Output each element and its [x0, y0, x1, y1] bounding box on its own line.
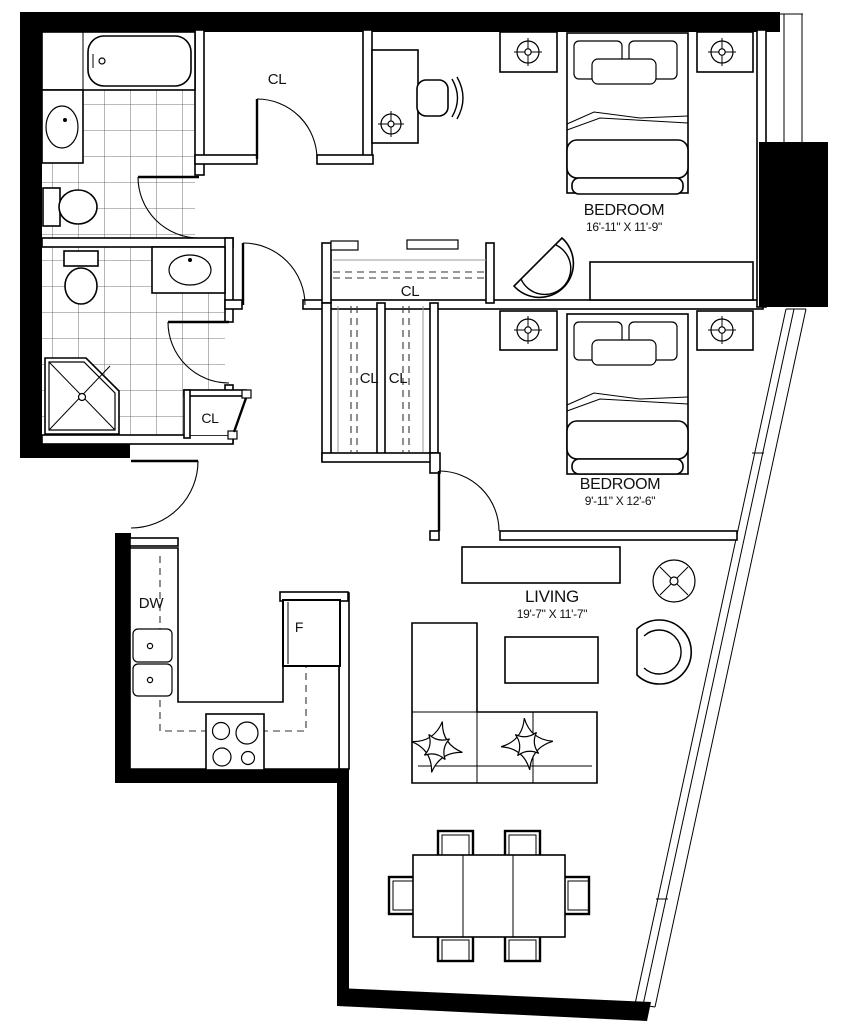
kitchen-top-wall-stub: [130, 538, 178, 546]
entry-closet-right-wall: [363, 30, 372, 159]
dining-area: [389, 831, 589, 961]
bedroom1-bottom-wall: [303, 300, 763, 309]
living-dimensions: 19'-7" X 11'-7": [517, 607, 587, 621]
bedroom-2: BEDROOM 9'-11" X 12'-6": [500, 311, 753, 508]
bedroom1-label: BEDROOM: [584, 202, 665, 219]
linen-closet-label: CL: [201, 410, 219, 426]
dining-chair: [389, 877, 414, 914]
entry-closet-label: CL: [268, 71, 287, 88]
bed-bench: [572, 459, 683, 474]
top-wall: [20, 12, 780, 32]
hall-closet-right-wall: [430, 303, 438, 461]
bedroom2-door-jamb-wall: [430, 453, 440, 473]
duvet-foot: [567, 140, 688, 178]
nightstand: [697, 32, 753, 72]
bed: [567, 314, 688, 474]
bedroom2-wall-corner: [430, 531, 439, 540]
throw-pillow: [592, 59, 656, 84]
refrigerator: F: [283, 600, 340, 666]
bed1-closet-right-wall: [486, 243, 494, 303]
armchair: [637, 620, 691, 684]
window-top-right: [780, 14, 803, 142]
entry-closet-door: [257, 99, 317, 159]
entry-closet: CL: [268, 71, 287, 88]
burner: [242, 752, 255, 765]
sliding-door-panel: [407, 240, 458, 249]
dining-chair: [564, 877, 589, 914]
refrigerator-label: F: [295, 619, 303, 635]
sink-faucet-icon: [63, 118, 67, 122]
hall-closet-left-wall: [322, 303, 331, 461]
hall-closet-bottom-wall: [322, 453, 438, 462]
tub-drain-icon: [99, 58, 105, 64]
toilet: [64, 251, 98, 304]
bed-bench: [572, 178, 683, 194]
living-room: LIVING 19'-7" X 11'-7": [406, 547, 695, 783]
bedroom1-dimensions: 16'-11" X 11'-9": [586, 220, 662, 234]
dining-chair: [505, 831, 540, 856]
bedroom1-closet-label: CL: [401, 283, 420, 300]
armchair: [514, 238, 573, 297]
floor-lamp-symbol: [653, 560, 695, 602]
floor-plan: CL CL CL CL CL: [0, 0, 848, 1024]
throw-pillow: [592, 340, 656, 365]
door-swing: [439, 471, 499, 531]
left-wall: [20, 12, 42, 458]
bottom-wall: [337, 988, 651, 1021]
hall-closet-right-label: CL: [389, 370, 408, 387]
bedroom2-dimensions: 9'-11" X 12'-6": [585, 494, 655, 508]
nightstand: [697, 311, 753, 350]
dresser: [590, 262, 753, 300]
entry-door: [131, 461, 198, 528]
living-label: LIVING: [525, 587, 579, 606]
bedroom1-closet: CL: [331, 240, 486, 300]
bed: [567, 33, 688, 194]
bedroom2-bottom-wall: [500, 531, 737, 540]
entry-closet-bottom-wall-left: [195, 155, 257, 164]
toilet: [43, 188, 97, 226]
bath-divider-wall: [42, 238, 233, 247]
burner: [213, 748, 231, 766]
bedroom1-door: [243, 243, 305, 305]
stove: [206, 714, 264, 770]
linen-closet: CL: [184, 390, 251, 439]
closet-rod-dashes: [333, 272, 486, 278]
door-swing: [243, 243, 305, 305]
kitchen: F DW: [130, 548, 348, 770]
dining-chair: [505, 936, 540, 961]
dining-chair: [438, 831, 473, 856]
sliding-door-panel: [331, 241, 358, 250]
door-swing: [131, 461, 198, 528]
living-left-wall: [337, 783, 349, 995]
bed1-closet-left-wall: [322, 243, 331, 303]
kitchen-bottom-wall: [115, 769, 349, 783]
closet-rod-dashes: [351, 306, 357, 452]
bath-main-right-wall: [195, 30, 204, 175]
sink-faucet-icon: [188, 258, 192, 262]
console-table: [462, 547, 620, 583]
bedroom2-label: BEDROOM: [580, 476, 661, 493]
desk: [372, 50, 418, 143]
dishwasher-label: DW: [139, 595, 165, 612]
bedroom2-door: [439, 471, 499, 531]
duvet-foot: [567, 421, 688, 459]
bath-ensuite-bottom-wall: [42, 435, 233, 444]
entry-closet-bottom-wall-right: [317, 155, 373, 164]
burner: [236, 722, 258, 744]
nightstand: [500, 32, 557, 72]
structural-column: [759, 142, 828, 307]
floor-plan-page: CL CL CL CL CL: [0, 0, 848, 1024]
vanity-sink-basin: [46, 106, 78, 148]
coffee-table: [505, 637, 598, 683]
desk-chair: [417, 77, 463, 119]
door-swing: [257, 99, 317, 159]
hall-closet-left-label: CL: [360, 370, 379, 387]
nightstand: [500, 311, 557, 350]
burner: [213, 723, 230, 740]
dining-chair: [438, 936, 473, 961]
kitchen-left-wall: [115, 533, 131, 783]
kitchen-sink: [133, 629, 172, 696]
bedroom1-wall-left: [225, 300, 242, 309]
dining-table: [413, 855, 565, 937]
